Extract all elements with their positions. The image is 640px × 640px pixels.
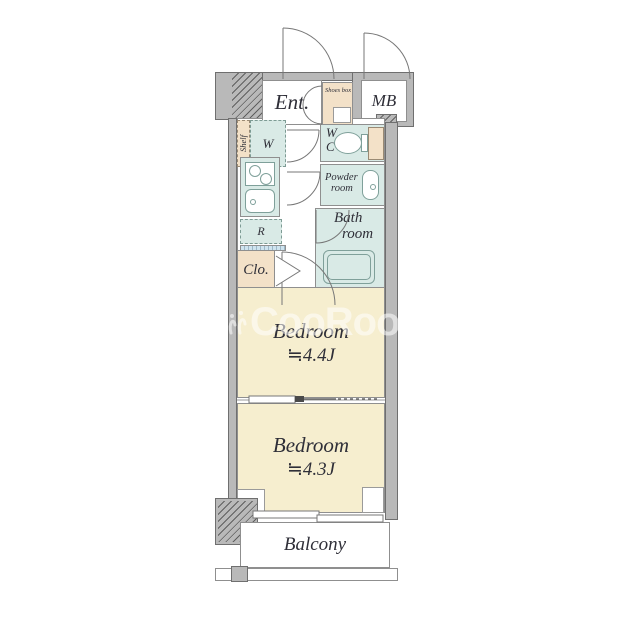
watermark: CooRooM: [226, 300, 456, 344]
refrigerator-space: R: [240, 219, 282, 244]
entrance-label: Ent.: [275, 91, 309, 113]
floor-plan: MB Ent. Shoes box Shelf W W C: [0, 0, 640, 640]
washbasin: [362, 170, 379, 200]
entrance-step: [333, 107, 351, 123]
kitchen-sink: [245, 189, 275, 213]
closet-clo-label: Clo.: [243, 263, 268, 279]
stove-burner: [249, 165, 261, 177]
balcony-label: Balcony: [284, 535, 346, 555]
wc-room: W C: [320, 124, 385, 162]
bathtub: [323, 250, 375, 284]
shelf-label: Shelf: [239, 135, 248, 152]
faucet-dot: [250, 199, 256, 205]
shoes-box: Shoes box: [322, 82, 353, 125]
stove: [245, 162, 275, 186]
meter-box-label: MB: [372, 92, 397, 110]
wall-top-left-block: [215, 72, 264, 120]
powder-room-label-line1: Powder: [325, 172, 358, 183]
bath-room-label-line1: Bath: [334, 211, 373, 227]
bedroom-2-label: Bedroom: [238, 434, 384, 456]
balcony-rail-post: [231, 566, 248, 582]
kitchen-counter: [240, 157, 280, 217]
watermark-bird-icon: [226, 307, 248, 337]
powder-room: Powder room: [320, 164, 385, 206]
bath-room-label-line2: room: [342, 227, 373, 243]
toilet: [334, 132, 362, 154]
wall-hatch-top-left: [232, 73, 264, 119]
basin-drain-dot: [370, 184, 376, 190]
window-jamb-right: [362, 487, 384, 513]
bathtub-inner: [327, 254, 371, 280]
closet-w-label: W: [263, 137, 274, 151]
balcony-window-sash: [317, 515, 383, 522]
bath-room: Bath room: [315, 208, 385, 290]
watermark-text: CooRooM: [250, 300, 432, 345]
toilet-tank: [361, 134, 368, 152]
refrigerator-label: R: [257, 225, 264, 238]
balcony: Balcony: [240, 522, 390, 568]
bedroom-1-size: ≒4.4J: [238, 346, 384, 366]
entrance: Ent.: [262, 80, 322, 125]
powder-room-label-line2: room: [331, 183, 358, 194]
stove-burner: [260, 173, 272, 185]
closet-clo: Clo.: [237, 250, 275, 292]
wc-cabinet: [368, 127, 384, 160]
bedroom-2-size: ≒4.3J: [238, 460, 384, 480]
shoes-box-label: Shoes box: [325, 88, 351, 95]
